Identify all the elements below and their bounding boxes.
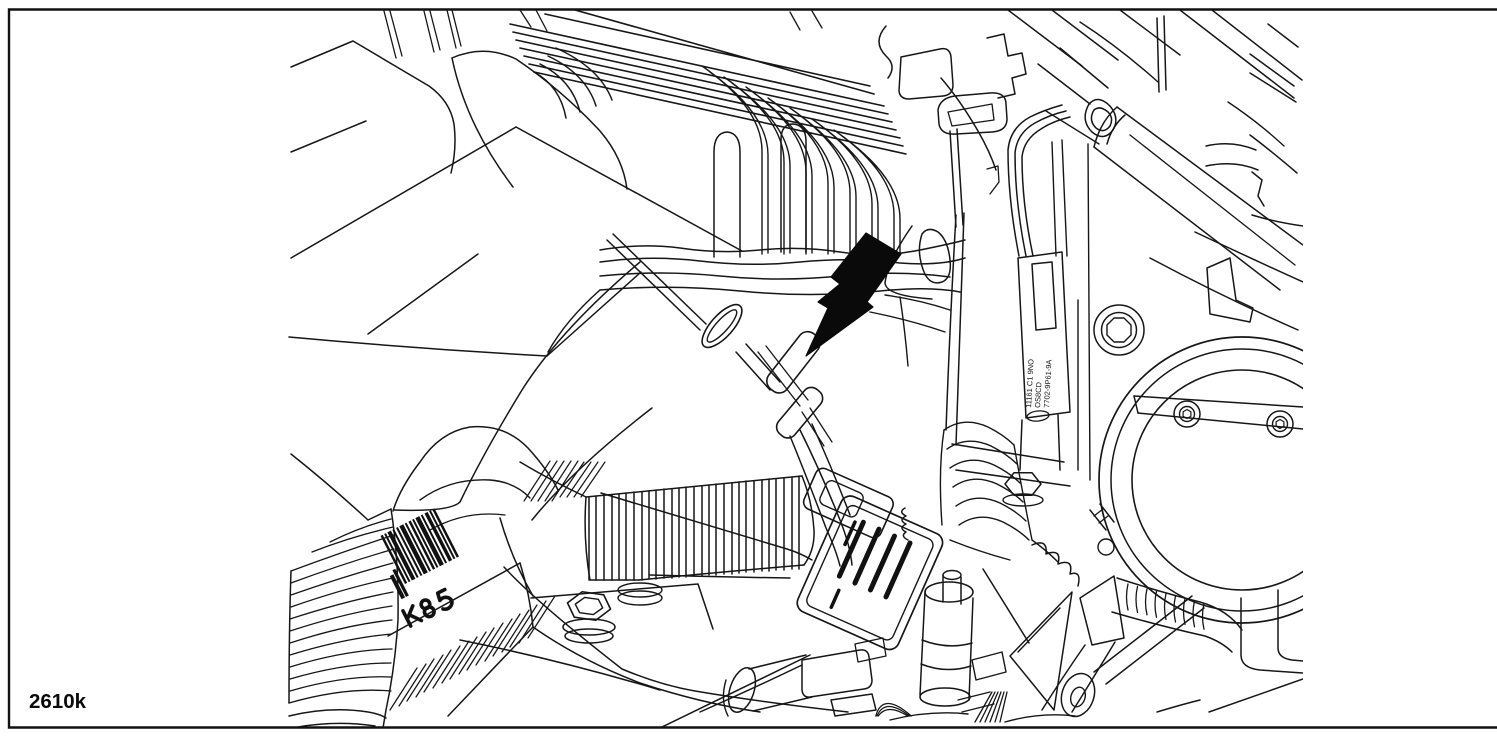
svg-text:2610k: 2610k	[29, 690, 87, 713]
